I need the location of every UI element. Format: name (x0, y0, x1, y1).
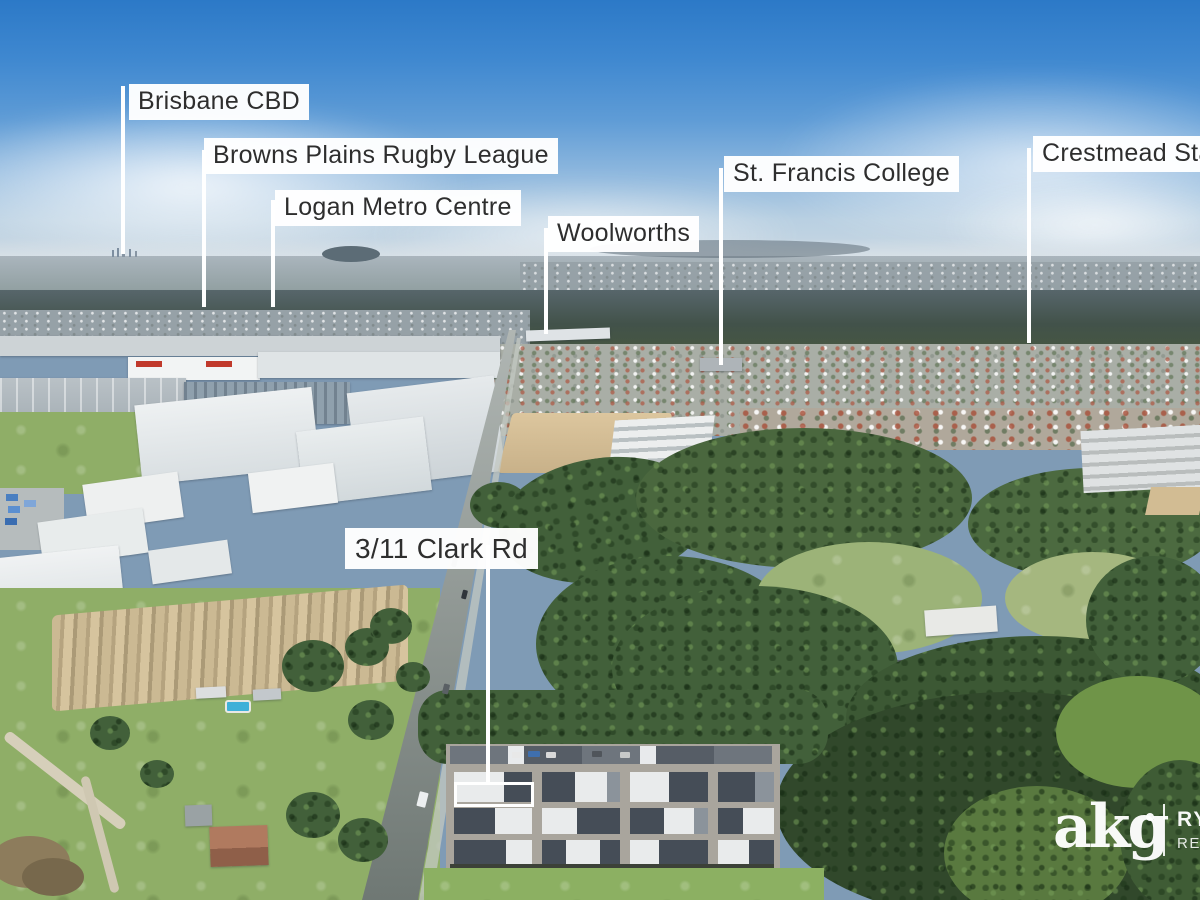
development-site (446, 744, 780, 870)
aerial-location-photo: Brisbane CBD Browns Plains Rugby League … (0, 0, 1200, 900)
new-estate-roof-rows (1080, 425, 1200, 493)
brand-divider (1163, 804, 1165, 856)
roadside-tree (348, 700, 394, 740)
callout-label: Woolworths (548, 216, 699, 252)
parked-car (528, 751, 540, 757)
townhouse-row (718, 808, 774, 834)
callout-label: St. Francis College (724, 156, 959, 192)
rear-roof-row (450, 746, 772, 764)
townhouse-row (454, 808, 532, 834)
townhouse-row (454, 840, 532, 866)
partner-name: RY (1177, 808, 1200, 832)
townhouse-row (630, 772, 708, 802)
callout-label: Brisbane CBD (129, 84, 309, 120)
roadside-tree (396, 662, 430, 692)
townhouse-row (630, 808, 708, 834)
townhouse-row (718, 772, 774, 802)
partner-subtitle: REA (1177, 835, 1200, 852)
roadside-tree (338, 818, 388, 862)
callout-label: Browns Plains Rugby League (204, 138, 558, 174)
bushland (636, 428, 972, 568)
callout-label: Logan Metro Centre (275, 190, 521, 226)
leader-line (486, 545, 490, 785)
parked-car (512, 752, 522, 758)
rural-house-white-roof (924, 606, 998, 637)
roadside-tree (370, 608, 412, 644)
leader-line (202, 150, 206, 307)
front-lawn (424, 868, 824, 900)
leader-line (1027, 148, 1031, 343)
property-highlight-outline (454, 782, 534, 807)
callout-label: Crestmead Sta (1033, 136, 1200, 172)
parked-car (620, 752, 630, 758)
akg-logo: akg (1053, 792, 1166, 862)
townhouse-row (718, 840, 774, 866)
townhouse-row (542, 840, 620, 866)
akg-logo-dot (1146, 813, 1154, 821)
leader-line (121, 86, 125, 254)
townhouse-row (630, 840, 708, 866)
parked-car (546, 752, 556, 758)
leader-line (719, 168, 723, 365)
parked-car (592, 751, 602, 757)
townhouse-row (542, 808, 620, 834)
townhouse-row (542, 772, 620, 802)
estate-sand-patch (1145, 487, 1200, 515)
callout-label: 3/11 Clark Rd (345, 528, 538, 569)
